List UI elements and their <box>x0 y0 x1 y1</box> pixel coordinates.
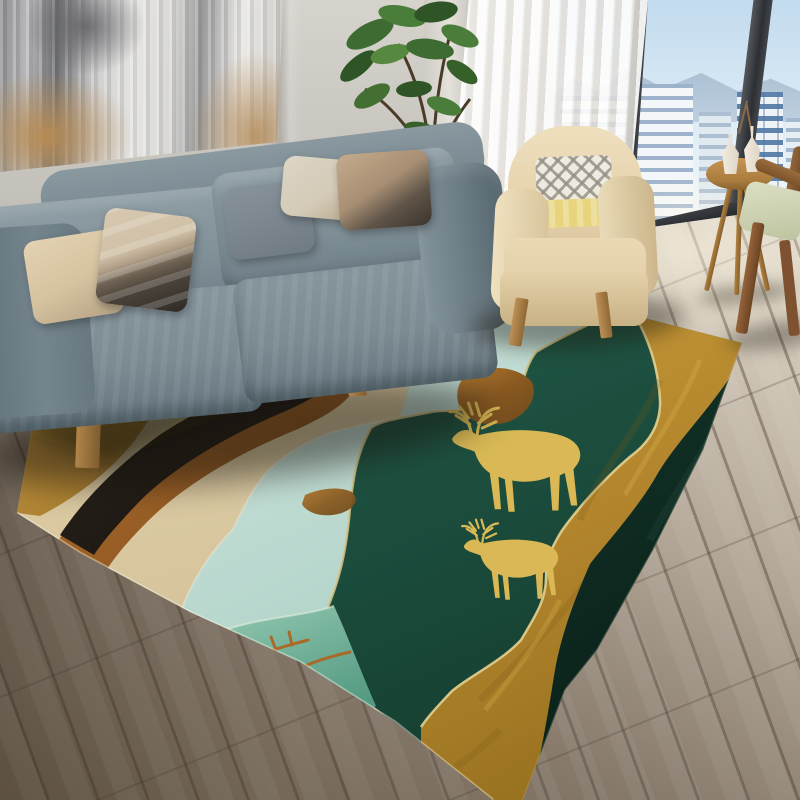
sofa-leg <box>75 420 101 469</box>
throw-pillow-brown <box>335 149 432 231</box>
throw-pillow-geometric <box>94 207 197 313</box>
living-room-scene <box>0 0 800 800</box>
